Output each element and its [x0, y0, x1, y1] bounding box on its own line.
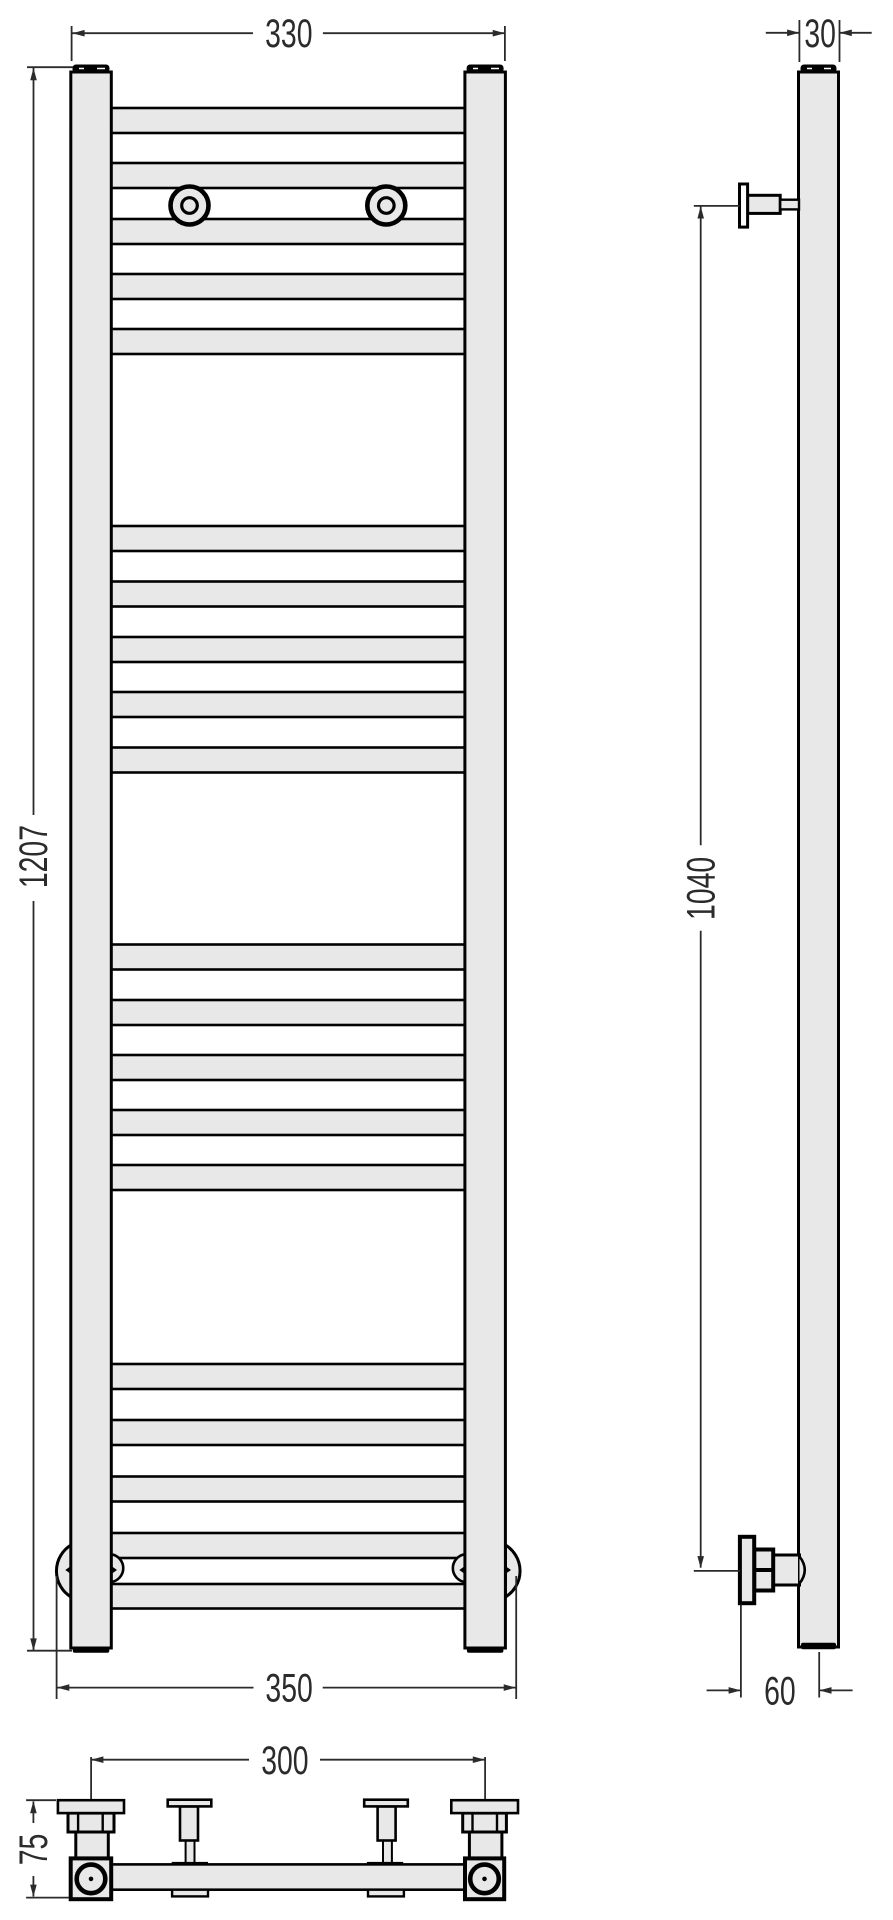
svg-text:30: 30: [804, 12, 836, 56]
svg-text:300: 300: [261, 1739, 308, 1783]
svg-text:350: 350: [265, 1667, 312, 1711]
svg-text:330: 330: [265, 13, 312, 57]
svg-text:1040: 1040: [680, 857, 724, 920]
svg-text:75: 75: [12, 1834, 56, 1866]
svg-text:60: 60: [764, 1670, 796, 1714]
svg-text:1207: 1207: [12, 825, 56, 888]
